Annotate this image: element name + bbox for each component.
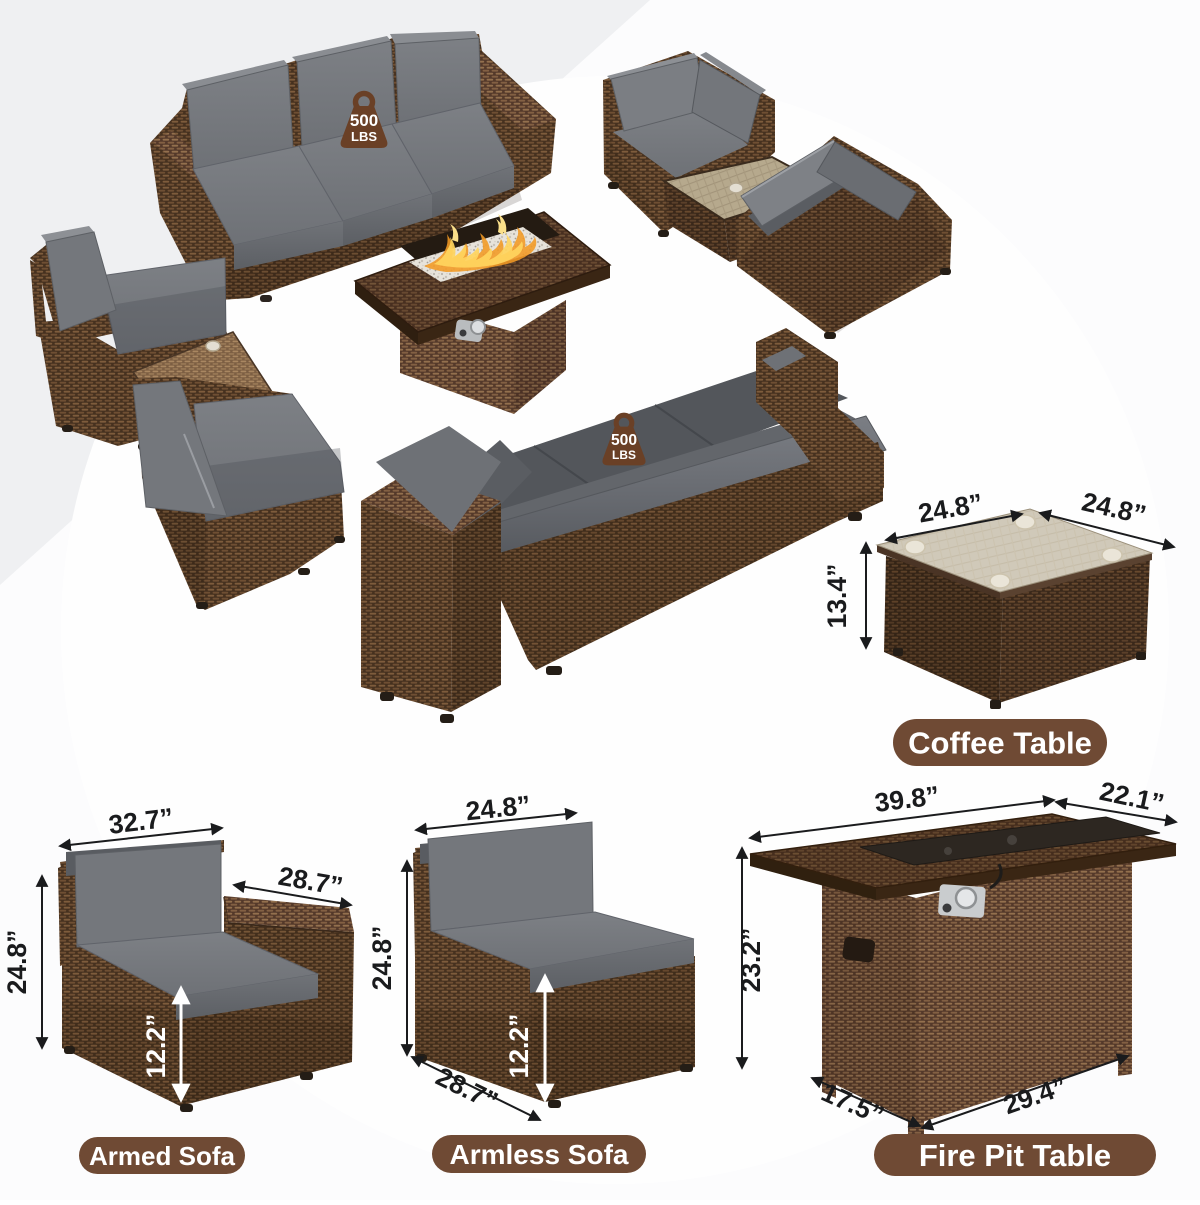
- svg-text:13.4”: 13.4”: [822, 564, 852, 629]
- svg-text:Fire Pit Table: Fire Pit Table: [919, 1138, 1111, 1173]
- svg-text:24.8”: 24.8”: [2, 930, 32, 995]
- svg-text:500: 500: [611, 432, 637, 449]
- svg-text:12.2”: 12.2”: [504, 1014, 534, 1079]
- svg-text:LBS: LBS: [351, 129, 377, 144]
- svg-text:12.2”: 12.2”: [141, 1014, 171, 1079]
- svg-text:24.8”: 24.8”: [367, 926, 397, 991]
- svg-text:LBS: LBS: [612, 448, 636, 462]
- svg-text:Armless Sofa: Armless Sofa: [450, 1139, 629, 1170]
- svg-text:23.2”: 23.2”: [736, 928, 766, 993]
- svg-text:Armed Sofa: Armed Sofa: [89, 1141, 235, 1171]
- svg-text:500: 500: [350, 111, 378, 130]
- svg-text:Coffee Table: Coffee Table: [908, 726, 1092, 761]
